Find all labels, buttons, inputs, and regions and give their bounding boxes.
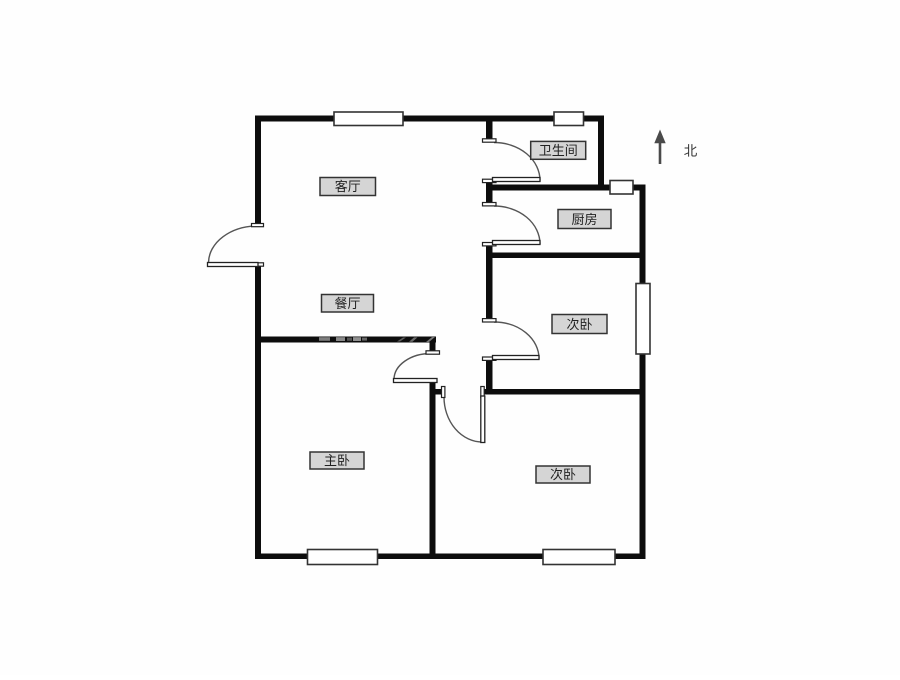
svg-text:客厅: 客厅 xyxy=(335,179,361,194)
svg-text:餐厅: 餐厅 xyxy=(334,296,360,311)
svg-text:主卧: 主卧 xyxy=(324,453,350,468)
svg-text:北: 北 xyxy=(684,144,698,159)
svg-text:厨房: 厨房 xyxy=(571,212,597,227)
svg-text:次卧: 次卧 xyxy=(550,467,576,482)
svg-text:卫生间: 卫生间 xyxy=(539,143,578,158)
svg-text:次卧: 次卧 xyxy=(566,317,592,332)
